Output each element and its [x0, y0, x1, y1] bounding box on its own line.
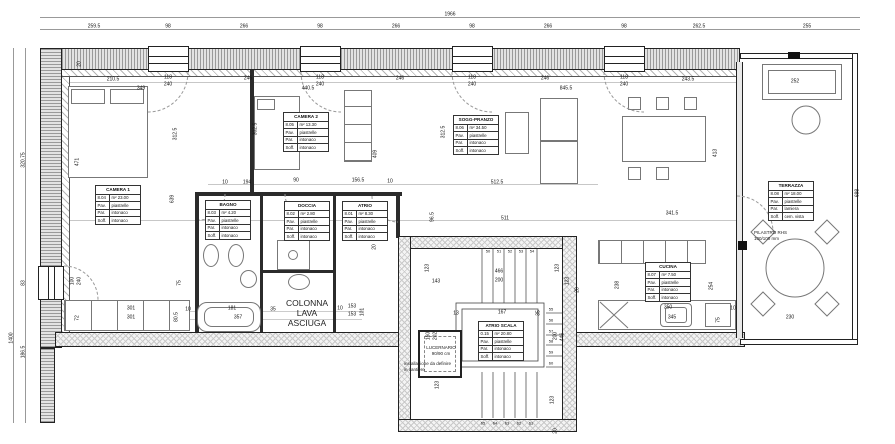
floor-plan-canvas: 1966259.598266982669826698262.5255320.75…	[0, 0, 895, 444]
door-swing-arcs	[64, 72, 773, 300]
terrace-chair	[751, 292, 775, 316]
door-arc	[372, 196, 398, 222]
terrace-chair	[751, 220, 775, 244]
stair-flight-right	[546, 313, 562, 367]
terrace-furniture	[600, 106, 839, 328]
lucernario-inner	[424, 336, 456, 372]
door-arc	[148, 72, 188, 112]
terrace-round-table	[766, 239, 824, 297]
door-arc	[64, 266, 98, 300]
terrace-side-table	[792, 106, 820, 134]
door-arc	[285, 194, 307, 216]
appliance-x-mark	[600, 302, 628, 328]
stair-landing-inner	[462, 309, 538, 361]
stair-steps	[456, 249, 562, 418]
stair-flight-top	[482, 249, 537, 307]
door-arc	[737, 196, 773, 232]
door-arc	[604, 72, 644, 112]
terrace-chair	[815, 220, 839, 244]
door-arc	[199, 194, 225, 220]
door-arc	[301, 72, 341, 112]
stair-flight-bottom	[482, 372, 537, 418]
door-arc	[452, 72, 492, 112]
terrace-chair	[815, 292, 839, 316]
